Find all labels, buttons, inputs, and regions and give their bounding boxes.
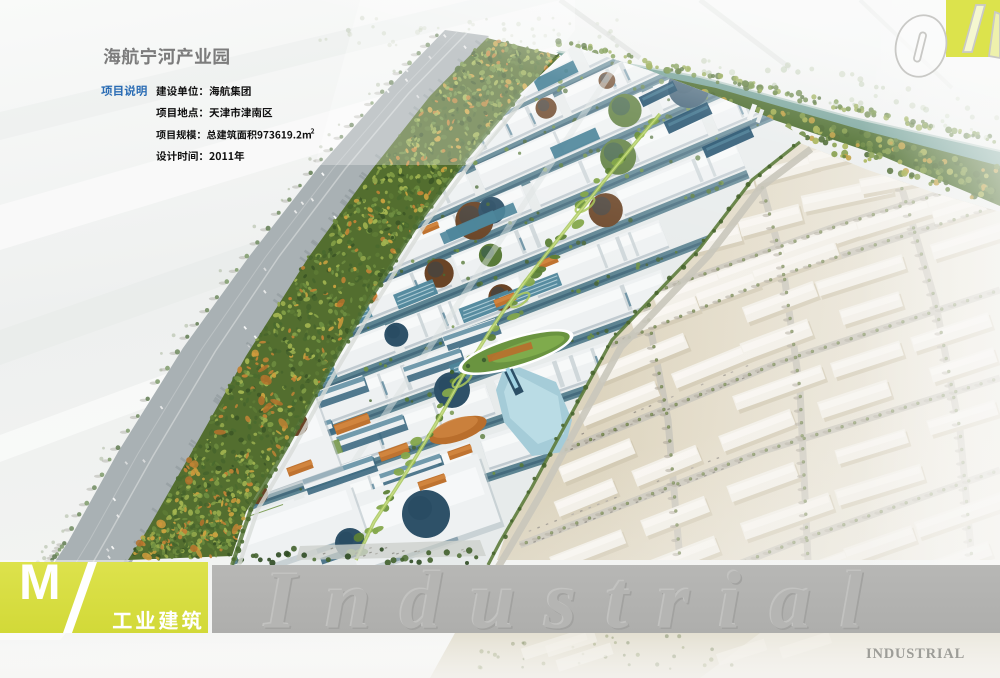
svg-text:INDUSTRIAL: INDUSTRIAL xyxy=(866,646,965,662)
svg-text:M: M xyxy=(19,554,61,610)
svg-text:Industrial: Industrial xyxy=(264,555,892,646)
